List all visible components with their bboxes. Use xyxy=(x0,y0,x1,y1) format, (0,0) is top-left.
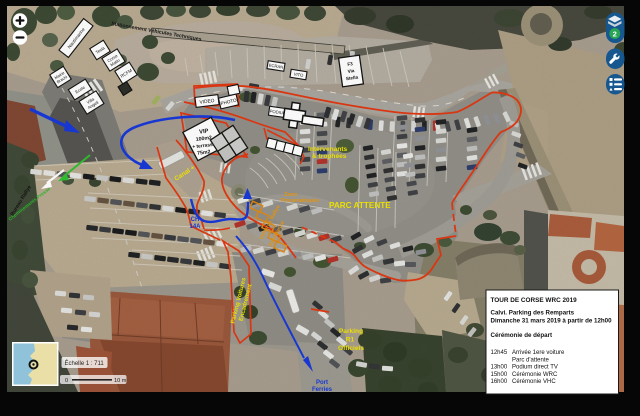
svg-text:Podium direct TV: Podium direct TV xyxy=(512,365,558,371)
svg-text:Cérémonie de départ: Cérémonie de départ xyxy=(491,332,553,339)
svg-text:Cérémonie WRC: Cérémonie WRC xyxy=(512,372,558,378)
svg-text:12h45: 12h45 xyxy=(491,350,508,356)
svg-text:Échelle 1 : 711: Échelle 1 : 711 xyxy=(65,360,105,367)
svg-text:16h00: 16h00 xyxy=(491,379,508,385)
svg-text:Cérémonie VHC: Cérémonie VHC xyxy=(512,379,556,385)
svg-text:15h00: 15h00 xyxy=(491,372,508,378)
svg-text:TOUR DE CORSE WRC 2019: TOUR DE CORSE WRC 2019 xyxy=(491,297,578,304)
svg-text:10 m: 10 m xyxy=(114,378,127,384)
svg-text:0: 0 xyxy=(65,378,68,384)
svg-text:13h00: 13h00 xyxy=(491,365,508,371)
svg-text:Calvi. Parking des Remparts: Calvi. Parking des Remparts xyxy=(491,310,575,317)
svg-text:Parc d'attente: Parc d'attente xyxy=(512,357,549,363)
svg-text:Arrivée 1ere voiture: Arrivée 1ere voiture xyxy=(512,350,565,356)
svg-text:Dimanche 31 mars 2019 à partir: Dimanche 31 mars 2019 à partir de 12h00 xyxy=(491,318,613,325)
svg-text:2: 2 xyxy=(613,29,617,38)
